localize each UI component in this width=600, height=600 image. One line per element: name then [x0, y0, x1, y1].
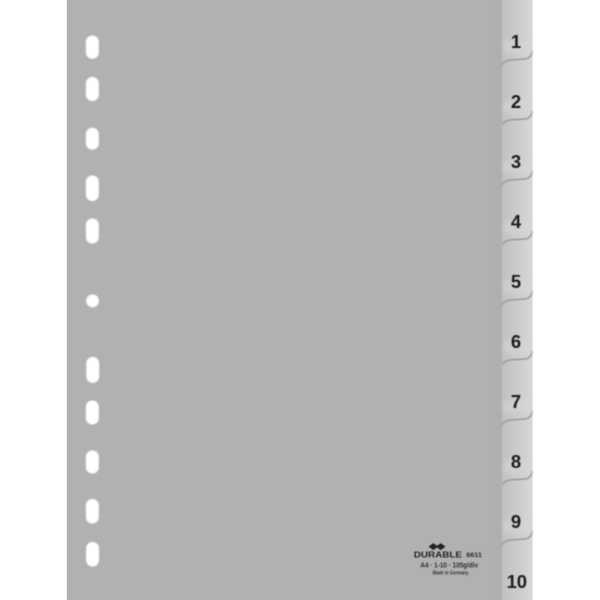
svg-text:2: 2 — [511, 91, 521, 112]
svg-text:6: 6 — [511, 331, 521, 352]
svg-text:A4 · 1-10 · 105g/div: A4 · 1-10 · 105g/div — [420, 563, 478, 570]
svg-text:9: 9 — [511, 511, 521, 532]
svg-text:4: 4 — [511, 211, 522, 232]
svg-text:DURABLE: DURABLE — [414, 550, 462, 559]
svg-text:1: 1 — [511, 31, 521, 52]
svg-text:5: 5 — [511, 271, 521, 292]
svg-text:Made in Germany: Made in Germany — [433, 571, 469, 577]
svg-text:6611: 6611 — [466, 552, 482, 559]
svg-text:10: 10 — [507, 571, 527, 592]
svg-text:8: 8 — [511, 451, 521, 472]
svg-text:7: 7 — [511, 391, 521, 412]
svg-text:3: 3 — [511, 151, 521, 172]
